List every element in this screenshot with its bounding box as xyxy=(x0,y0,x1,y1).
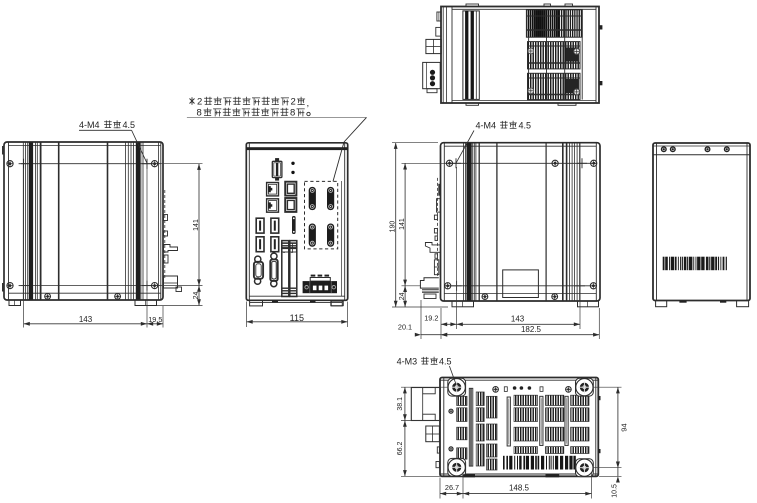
svg-text:24: 24 xyxy=(193,292,200,300)
svg-text:4-M4: 4-M4 xyxy=(476,121,497,131)
svg-text:190: 190 xyxy=(390,221,397,233)
svg-text:8: 8 xyxy=(290,108,295,119)
svg-text:66.2: 66.2 xyxy=(397,441,404,455)
svg-text:4-M4: 4-M4 xyxy=(79,120,100,130)
svg-text:26.7: 26.7 xyxy=(445,483,459,492)
svg-text:19.5: 19.5 xyxy=(148,315,162,324)
svg-text:141: 141 xyxy=(399,218,406,230)
svg-text:4.5: 4.5 xyxy=(123,120,136,130)
svg-text:4.5: 4.5 xyxy=(439,357,452,367)
svg-text:141: 141 xyxy=(193,219,200,231)
svg-text:20.1: 20.1 xyxy=(398,323,412,332)
svg-text:143: 143 xyxy=(511,314,525,323)
svg-text:24: 24 xyxy=(399,292,406,300)
svg-text:148.5: 148.5 xyxy=(509,483,530,492)
svg-text:8: 8 xyxy=(197,108,202,119)
svg-text:115: 115 xyxy=(290,313,304,323)
svg-text:4-M3: 4-M3 xyxy=(397,357,418,367)
svg-text:,: , xyxy=(307,98,310,109)
svg-text:2: 2 xyxy=(197,97,202,108)
svg-text:94: 94 xyxy=(620,423,629,431)
svg-text:38.1: 38.1 xyxy=(397,397,404,411)
svg-text:2: 2 xyxy=(291,97,296,108)
svg-text:143: 143 xyxy=(79,315,93,324)
svg-text:4.5: 4.5 xyxy=(519,121,532,131)
svg-text:19.2: 19.2 xyxy=(424,313,438,322)
svg-text:10.5: 10.5 xyxy=(612,484,619,498)
svg-text:182.5: 182.5 xyxy=(521,325,542,334)
